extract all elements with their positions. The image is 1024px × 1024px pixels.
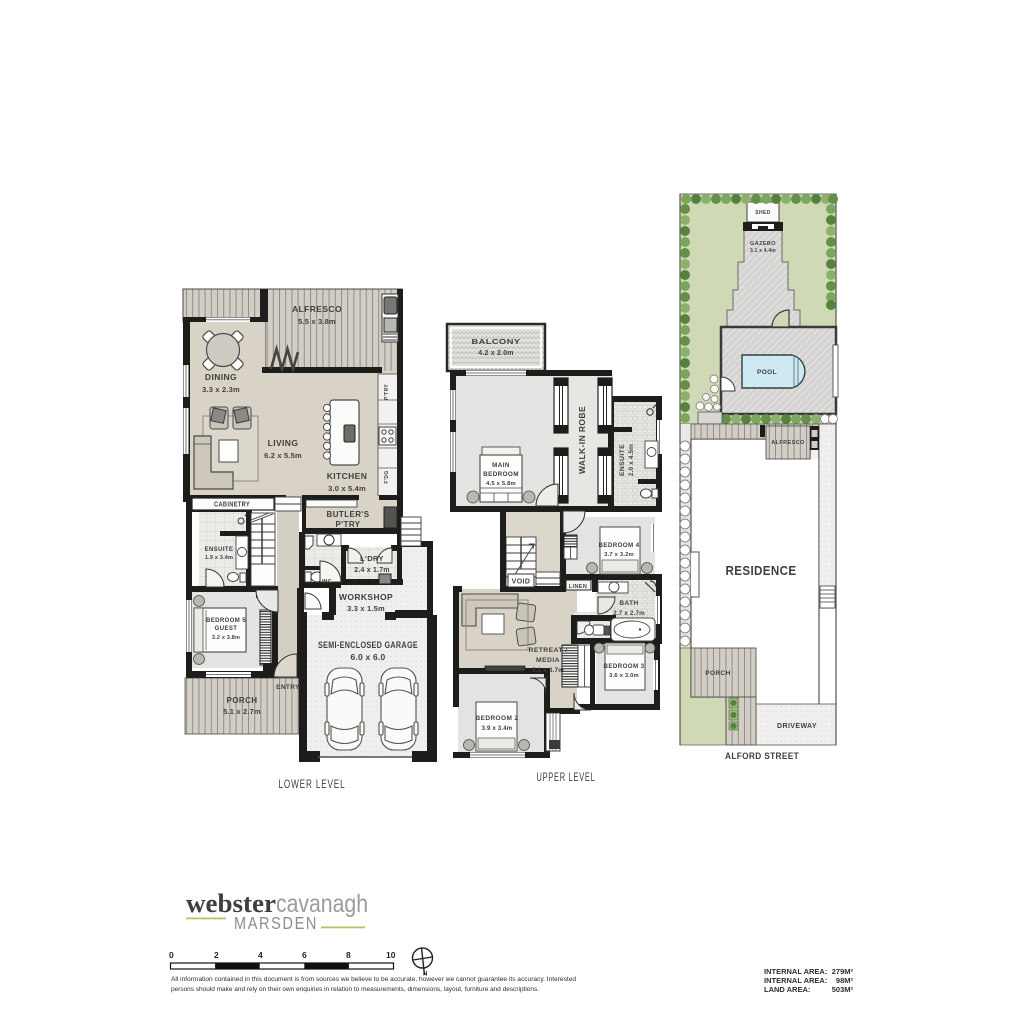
svg-text:10: 10 [386,950,396,960]
svg-text:ALFRESCO: ALFRESCO [771,440,805,446]
svg-text:VOID: VOID [512,579,531,586]
svg-text:RESIDENCE: RESIDENCE [726,564,797,578]
svg-text:2.4 x 1.7m: 2.4 x 1.7m [354,567,389,574]
svg-text:6.0 x 6.0: 6.0 x 6.0 [351,652,386,662]
svg-text:P'TRY: P'TRY [384,384,390,401]
svg-text:SHED: SHED [755,210,771,216]
svg-text:0: 0 [169,950,174,960]
svg-text:BEDROOM 4: BEDROOM 4 [598,542,639,549]
svg-text:ENSUITE: ENSUITE [205,547,234,553]
svg-text:INTERNAL AREA:: INTERNAL AREA: [764,967,827,976]
svg-text:BEDROOM 2: BEDROOM 2 [476,715,519,722]
svg-text:2.7 x 2.7m: 2.7 x 2.7m [613,610,645,617]
svg-text:3.0 x 5.4m: 3.0 x 5.4m [328,484,366,493]
svg-text:F'DG: F'DG [384,470,390,483]
svg-text:RETREAT /: RETREAT / [529,647,568,654]
svg-text:503M²: 503M² [832,985,854,994]
svg-text:ENTRY: ENTRY [276,684,300,691]
svg-text:BUTLER'S: BUTLER'S [327,510,370,519]
svg-text:4.5 x 5.8m: 4.5 x 5.8m [486,481,516,487]
svg-text:MAIN: MAIN [492,462,510,469]
svg-text:2.0 x 4.5m: 2.0 x 4.5m [628,444,635,476]
svg-text:DRIVEWAY: DRIVEWAY [777,723,817,730]
svg-text:MARSDEN: MARSDEN [234,913,318,933]
svg-text:POOL: POOL [757,369,777,376]
svg-text:WALK-IN ROBE: WALK-IN ROBE [577,406,587,474]
svg-text:5.5 x 3.8m: 5.5 x 3.8m [298,317,336,326]
svg-text:3.3 x 1.5m: 3.3 x 1.5m [347,604,385,613]
svg-text:3.1 x 4.4m: 3.1 x 4.4m [750,248,776,254]
svg-text:5.1 x 3.7m: 5.1 x 3.7m [532,667,564,674]
svg-text:KITCHEN: KITCHEN [327,471,368,481]
svg-text:98M²: 98M² [836,976,854,985]
svg-text:UPPER LEVEL: UPPER LEVEL [537,772,596,784]
svg-text:BEDROOM 5: BEDROOM 5 [206,618,246,624]
svg-text:1.9 x 3.4m: 1.9 x 3.4m [205,555,233,561]
svg-text:8: 8 [346,950,351,960]
svg-text:3.7 x 3.2m: 3.7 x 3.2m [604,552,634,558]
svg-text:4: 4 [258,950,263,960]
svg-text:BATH: BATH [619,600,638,607]
svg-text:MEDIA: MEDIA [536,657,560,664]
svg-text:SEMI-ENCLOSED GARAGE: SEMI-ENCLOSED GARAGE [318,640,418,650]
svg-text:3.2 x 3.8m: 3.2 x 3.8m [212,635,240,641]
svg-text:BEDROOM: BEDROOM [483,471,519,478]
svg-text:CABINETRY: CABINETRY [214,502,250,509]
svg-text:persons should make and rely o: persons should make and rely on their ow… [171,986,539,993]
svg-text:6: 6 [302,950,307,960]
svg-text:PORCH: PORCH [227,696,258,705]
svg-text:3.3 x 2.3m: 3.3 x 2.3m [202,385,240,394]
svg-text:279M²: 279M² [832,967,854,976]
svg-text:3.9 x 3.4m: 3.9 x 3.4m [482,726,513,732]
svg-text:BEDROOM 3: BEDROOM 3 [603,663,644,670]
svg-text:ENSUITE: ENSUITE [619,444,626,476]
svg-text:L'DRY: L'DRY [360,554,384,563]
svg-text:LOWER LEVEL: LOWER LEVEL [279,779,346,791]
svg-text:LIVING: LIVING [268,438,299,448]
svg-text:All information contained in t: All information contained in this docume… [171,976,576,983]
svg-text:LAND AREA:: LAND AREA: [764,985,810,994]
svg-text:PORCH: PORCH [705,670,730,677]
svg-text:2: 2 [214,950,219,960]
svg-text:BALCONY: BALCONY [472,337,521,346]
svg-text:GAZEBO: GAZEBO [750,241,776,247]
svg-text:INTERNAL AREA:: INTERNAL AREA: [764,976,827,985]
svg-text:P'TRY: P'TRY [336,520,361,529]
svg-text:WORKSHOP: WORKSHOP [339,592,393,602]
svg-text:6.2 x 5.5m: 6.2 x 5.5m [264,451,302,460]
svg-text:DINING: DINING [205,372,237,382]
svg-text:WC: WC [322,579,332,585]
svg-text:ALFRESCO: ALFRESCO [292,304,342,314]
svg-text:GUEST: GUEST [215,626,238,632]
svg-text:LINEN: LINEN [569,584,588,590]
svg-text:ALFORD STREET: ALFORD STREET [725,751,799,762]
svg-text:3.6 x 3.0m: 3.6 x 3.0m [609,673,639,679]
svg-text:5.1 x 2.7m: 5.1 x 2.7m [223,707,261,716]
svg-text:4.2 x 2.0m: 4.2 x 2.0m [478,350,513,357]
